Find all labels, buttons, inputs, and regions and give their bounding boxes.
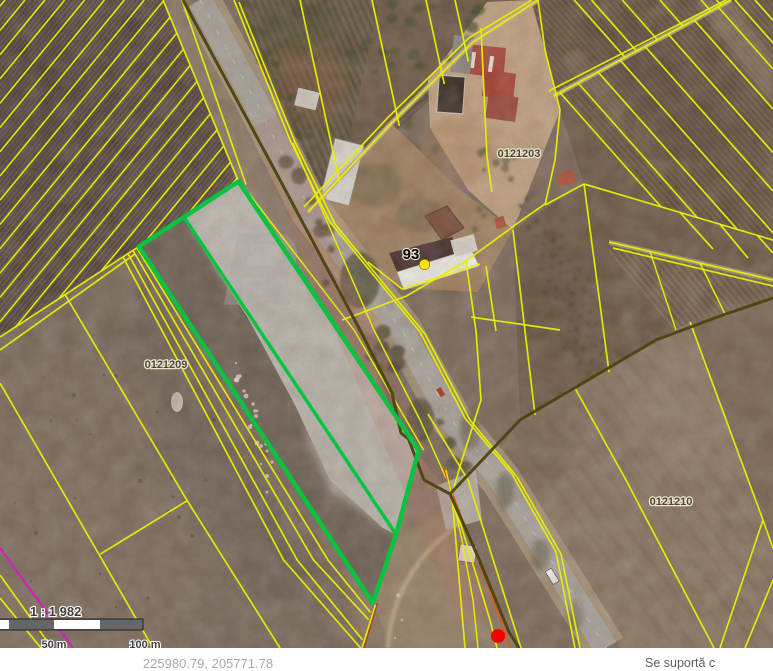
svg-text:0121203: 0121203	[498, 148, 541, 160]
svg-text:R: R	[222, 211, 298, 328]
svg-text:0121209: 0121209	[145, 359, 188, 371]
svg-text:93: 93	[403, 246, 420, 263]
svg-text:0121210: 0121210	[650, 496, 693, 508]
svg-text:225980.79, 205771.78: 225980.79, 205771.78	[143, 656, 273, 671]
svg-text:Se suportă c: Se suportă c	[645, 656, 715, 670]
svg-text:1 : 1 982: 1 : 1 982	[30, 604, 81, 619]
